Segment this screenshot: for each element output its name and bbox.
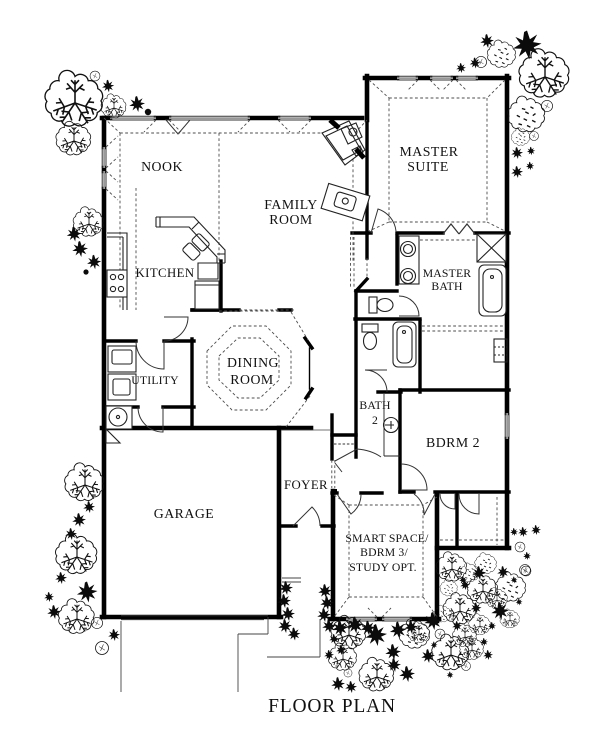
svg-text:SUITE: SUITE: [407, 159, 449, 174]
svg-text:ROOM: ROOM: [269, 212, 312, 227]
svg-text:FAMILY: FAMILY: [264, 197, 318, 212]
svg-text:DINING: DINING: [227, 355, 279, 370]
svg-text:STUDY OPT.: STUDY OPT.: [349, 561, 417, 574]
svg-text:KITCHEN: KITCHEN: [136, 266, 195, 280]
svg-text:ROOM: ROOM: [230, 372, 273, 387]
svg-text:SMART SPACE/: SMART SPACE/: [345, 532, 429, 545]
svg-text:GARAGE: GARAGE: [154, 506, 215, 521]
svg-text:2: 2: [372, 414, 378, 427]
svg-text:BDRM 3/: BDRM 3/: [360, 546, 408, 559]
svg-text:BDRM 2: BDRM 2: [426, 435, 480, 450]
svg-text:UTILITY: UTILITY: [131, 374, 179, 387]
svg-text:FOYER: FOYER: [284, 478, 328, 492]
svg-text:BATH: BATH: [431, 280, 463, 293]
svg-text:NOOK: NOOK: [141, 159, 183, 174]
svg-text:BATH: BATH: [359, 399, 391, 412]
svg-text:MASTER: MASTER: [423, 267, 472, 280]
svg-text:FLOOR PLAN: FLOOR PLAN: [268, 696, 396, 717]
svg-text:MASTER: MASTER: [400, 144, 459, 159]
